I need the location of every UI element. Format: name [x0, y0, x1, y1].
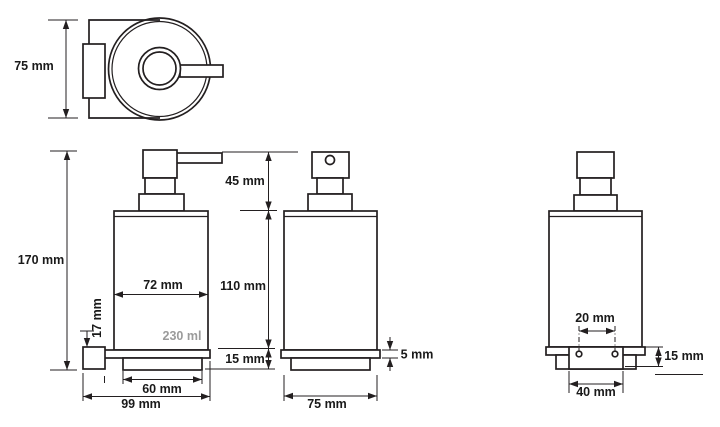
dim-label-body-width: 72 mm	[143, 278, 183, 292]
wall-bracket	[83, 347, 105, 369]
pump-outer-circle	[139, 48, 181, 90]
pump-neck	[317, 178, 343, 194]
dim-label-overall-height: 170 mm	[18, 253, 65, 267]
dim-label-overall-width: 99 mm	[121, 397, 161, 411]
soap-dispenser-dimension-drawing: 75 mm 170 mm 45 mm 110 mm 15	[0, 0, 720, 427]
dim-label-body-height: 110 mm	[220, 279, 266, 293]
dim-label-pump-height: 45 mm	[225, 174, 265, 188]
pump-head	[577, 152, 614, 178]
dim-bracket-height: 17 mm	[80, 298, 104, 347]
spout-top	[180, 65, 223, 77]
dim-top-height: 75 mm	[14, 20, 78, 118]
dim-label-bracket-height: 17 mm	[90, 298, 104, 338]
dim-label-plate-width: 40 mm	[576, 385, 616, 399]
bottle-body	[549, 211, 642, 347]
dim-depth: 75 mm	[284, 375, 377, 411]
dim-label-base-width: 60 mm	[142, 382, 182, 396]
bottle-body	[284, 211, 377, 350]
dim-label-plate-height: 15 mm	[664, 349, 704, 363]
dim-base-width: 60 mm	[105, 371, 203, 396]
pump-neck	[580, 178, 611, 195]
dim-label-depth: 75 mm	[307, 397, 347, 411]
dim-label-hole-spacing: 20 mm	[575, 311, 615, 325]
pump-head	[143, 150, 177, 178]
pump-neck	[145, 178, 175, 194]
dim-plate-width: 40 mm	[569, 371, 623, 399]
holder-arm	[88, 350, 210, 358]
wall-mount-block	[83, 44, 105, 98]
dim-flange-thickness: 5 mm	[382, 337, 433, 371]
pump-collar	[308, 194, 352, 211]
dim-label-base-height: 15 mm	[225, 352, 265, 366]
dim-label-flange-thickness: 5 mm	[401, 348, 434, 362]
spout	[176, 153, 222, 163]
bottle-base	[291, 358, 370, 370]
dim-overall-height: 170 mm	[18, 151, 77, 370]
capacity-label: 230 ml	[163, 329, 202, 343]
front-view: 170 mm 45 mm 110 mm 15 mm 72 mm 230 ml 1…	[18, 150, 298, 411]
bottle-base	[123, 358, 202, 370]
side-view: 5 mm 75 mm	[281, 152, 433, 411]
base-flange	[281, 350, 380, 358]
dim-label-top-height: 75 mm	[14, 59, 54, 73]
pump-collar	[574, 195, 617, 211]
technical-drawing-page: 75 mm 170 mm 45 mm 110 mm 15	[0, 0, 720, 427]
pump-collar	[139, 194, 184, 211]
top-view: 75 mm	[14, 18, 223, 120]
rear-view: 20 mm 15 mm 40 mm	[546, 152, 704, 399]
